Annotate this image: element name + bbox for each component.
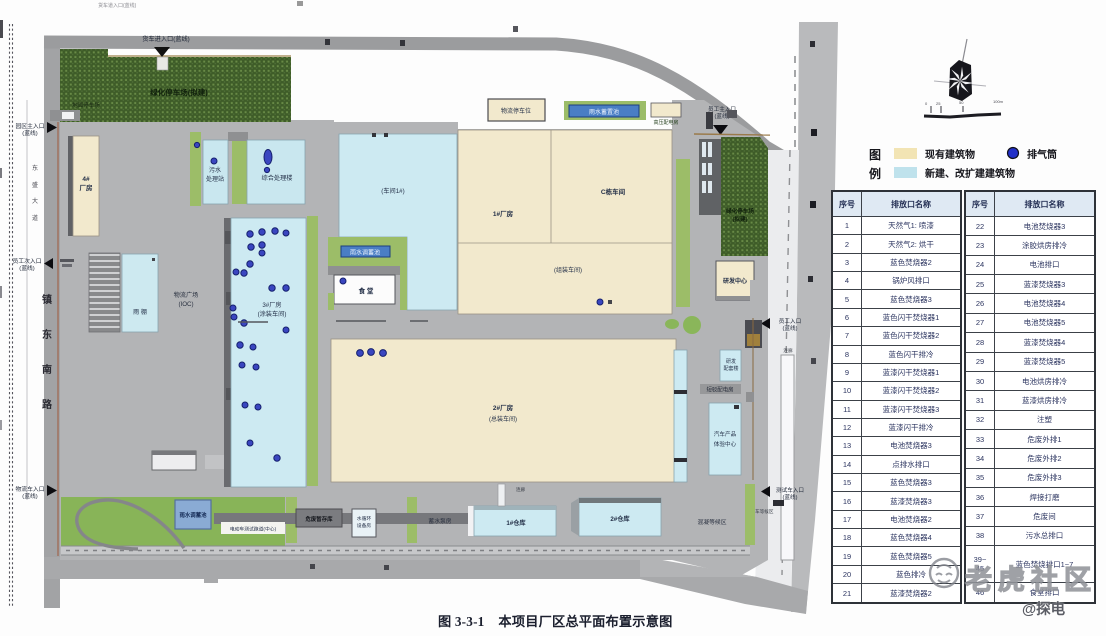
svg-text:物流停车位: 物流停车位 bbox=[501, 107, 531, 115]
svg-text:蓄水泵房: 蓄水泵房 bbox=[428, 517, 451, 525]
svg-text:连廊: 连廊 bbox=[783, 347, 793, 354]
svg-text:食 堂: 食 堂 bbox=[358, 286, 374, 295]
svg-text:污水: 污水 bbox=[209, 166, 221, 174]
svg-text:1#仓库: 1#仓库 bbox=[506, 519, 526, 527]
svg-text:(总装车间): (总装车间) bbox=[489, 415, 517, 423]
svg-text:(组装车间): (组装车间) bbox=[554, 266, 582, 274]
svg-text:道: 道 bbox=[32, 214, 38, 222]
svg-text:配套楼: 配套楼 bbox=[723, 365, 738, 372]
svg-text:东: 东 bbox=[42, 328, 52, 341]
svg-text:短驳配电房: 短驳配电房 bbox=[707, 386, 734, 394]
svg-text:地面停车场: 地面停车场 bbox=[72, 101, 100, 109]
svg-text:研发: 研发 bbox=[726, 358, 736, 365]
svg-text:绿化停车场(拟建): 绿化停车场(拟建) bbox=[150, 87, 208, 97]
svg-text:(IOC): (IOC) bbox=[178, 301, 193, 308]
svg-text:员工入口: 员工入口 bbox=[779, 318, 801, 325]
svg-text:(拟建): (拟建) bbox=[733, 215, 748, 223]
svg-text:设备房: 设备房 bbox=[357, 522, 372, 529]
svg-text:货车进入口(蓝线): 货车进入口(蓝线) bbox=[142, 35, 189, 43]
svg-text:汽车产品: 汽车产品 bbox=[714, 430, 737, 438]
svg-text:体验中心: 体验中心 bbox=[714, 440, 737, 448]
svg-text:雨水蓄置池: 雨水蓄置池 bbox=[589, 108, 619, 116]
svg-text:图: 图 bbox=[869, 148, 881, 162]
svg-text:(蓝线): (蓝线) bbox=[783, 493, 798, 501]
svg-text:现有建筑物: 现有建筑物 bbox=[925, 148, 975, 161]
svg-text:厂房: 厂房 bbox=[80, 183, 94, 192]
svg-text:处理站: 处理站 bbox=[206, 175, 224, 183]
svg-text:南: 南 bbox=[42, 363, 52, 376]
svg-text:(蓝线): (蓝线) bbox=[783, 324, 798, 332]
svg-text:测试车入口: 测试车入口 bbox=[776, 486, 804, 494]
svg-text:大: 大 bbox=[32, 197, 38, 205]
svg-text:(涂装车间): (涂装车间) bbox=[258, 310, 287, 318]
svg-text:2#厂房: 2#厂房 bbox=[493, 403, 514, 412]
svg-text:路: 路 bbox=[42, 398, 53, 411]
svg-text:(蓝线): (蓝线) bbox=[19, 264, 35, 272]
svg-text:雨水调蓄池: 雨水调蓄池 bbox=[180, 511, 208, 519]
svg-text:100m: 100m bbox=[993, 99, 1004, 104]
svg-text:危废暂存库: 危废暂存库 bbox=[306, 515, 334, 523]
svg-text:镇: 镇 bbox=[42, 293, 52, 306]
svg-text:(蓝线): (蓝线) bbox=[22, 129, 38, 137]
svg-text:雨水调蓄池: 雨水调蓄池 bbox=[350, 249, 380, 257]
svg-text:C栋车间: C栋车间 bbox=[601, 187, 626, 196]
svg-text:绿化停车场: 绿化停车场 bbox=[726, 207, 754, 215]
svg-text:综合处理楼: 综合处理楼 bbox=[262, 174, 293, 182]
svg-text:水循环: 水循环 bbox=[357, 515, 372, 522]
svg-text:3#厂房: 3#厂房 bbox=[262, 301, 281, 309]
svg-text:高压配电房: 高压配电房 bbox=[653, 119, 678, 126]
svg-text:新建、改扩建建筑物: 新建、改扩建建筑物 bbox=[925, 167, 1015, 180]
svg-text:排气筒: 排气筒 bbox=[1027, 148, 1057, 161]
svg-text:东: 东 bbox=[32, 164, 38, 172]
svg-text:混凝等候区: 混凝等候区 bbox=[698, 518, 727, 526]
svg-text:园区主入口: 园区主入口 bbox=[16, 122, 45, 130]
svg-text:25: 25 bbox=[936, 101, 941, 106]
svg-text:例: 例 bbox=[869, 166, 881, 181]
svg-text:研发中心: 研发中心 bbox=[723, 277, 747, 285]
svg-text:(蓝线): (蓝线) bbox=[22, 492, 38, 500]
svg-text:雨 棚: 雨 棚 bbox=[133, 308, 147, 316]
svg-text:物流车入口: 物流车入口 bbox=[16, 485, 45, 493]
svg-text:电动车测试跑道(中心): 电动车测试跑道(中心) bbox=[230, 526, 277, 533]
svg-text:0: 0 bbox=[925, 101, 928, 106]
svg-text:员工次入口: 员工次入口 bbox=[13, 257, 42, 265]
svg-text:50: 50 bbox=[959, 100, 964, 105]
svg-text:2#仓库: 2#仓库 bbox=[610, 515, 630, 523]
svg-text:物流广场: 物流广场 bbox=[174, 291, 199, 299]
svg-text:连廊: 连廊 bbox=[516, 486, 526, 493]
svg-text:货车道入口(蓝线): 货车道入口(蓝线) bbox=[98, 2, 137, 9]
svg-text:1#厂房: 1#厂房 bbox=[493, 209, 514, 218]
svg-text:(车间1#): (车间1#) bbox=[381, 187, 404, 195]
svg-text:4#: 4# bbox=[82, 176, 90, 183]
svg-text:盛: 盛 bbox=[32, 181, 38, 189]
